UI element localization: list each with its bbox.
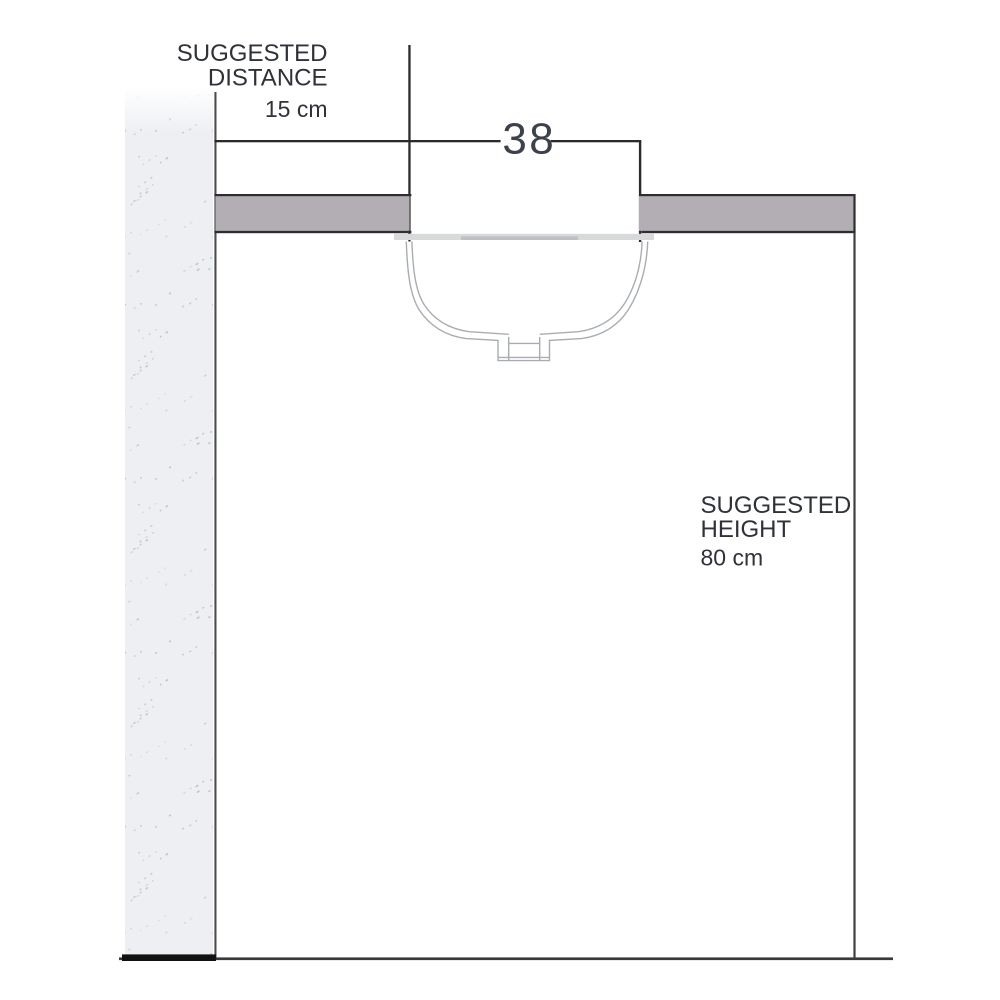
svg-text:80 cm: 80 cm — [701, 544, 764, 570]
svg-text:SUGGESTED: SUGGESTED — [701, 492, 852, 519]
svg-text:HEIGHT: HEIGHT — [701, 516, 792, 543]
svg-text:38: 38 — [502, 114, 556, 163]
svg-text:15 cm: 15 cm — [265, 96, 328, 122]
svg-text:SUGGESTED: SUGGESTED — [177, 40, 328, 67]
svg-text:DISTANCE: DISTANCE — [208, 65, 328, 92]
